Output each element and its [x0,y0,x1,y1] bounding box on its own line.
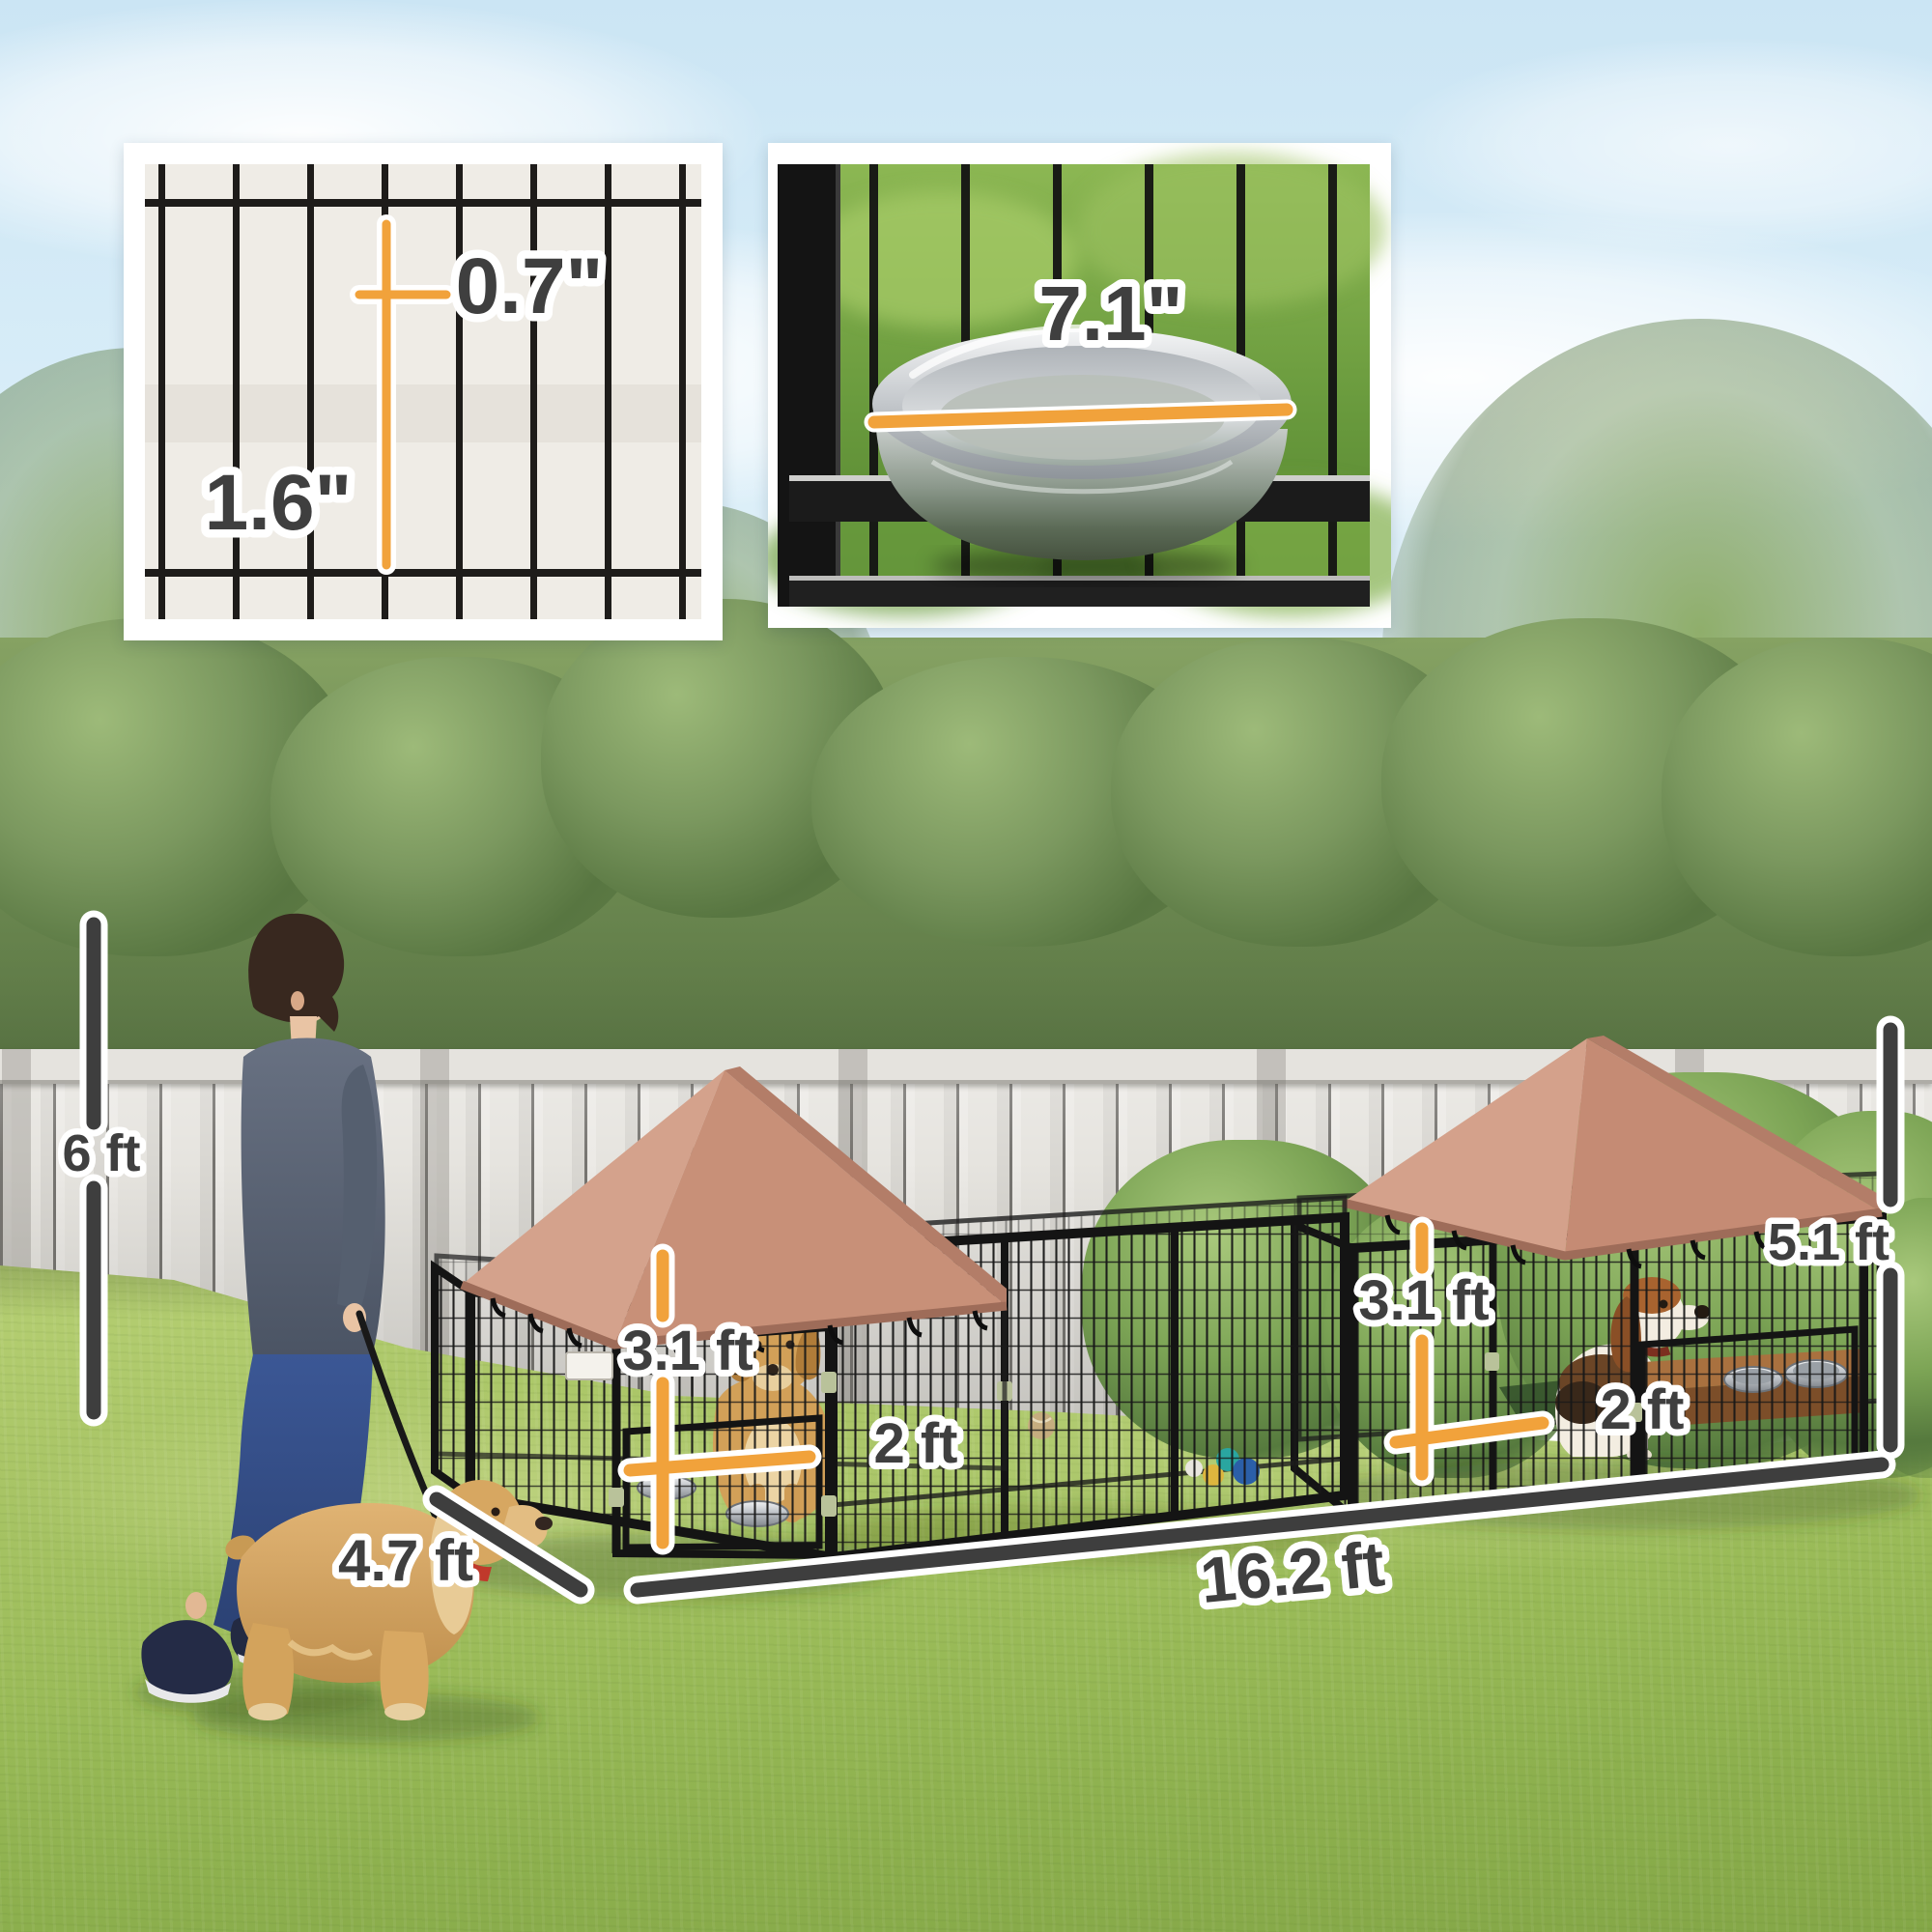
dimension-label-fence-height: 6 ft [63,1124,141,1182]
dimension-label-right-panel-height: 3.1 ft [1358,1269,1489,1332]
mesh-photo: 0.7" 1.6" [124,143,723,640]
hinge-clip [609,1488,624,1507]
product-scene: 6 ft 3.1 ft 2 ft 3.1 ft 2 ft 5.1 ft 4.7 … [0,0,1932,1932]
hinge-clip [1485,1352,1499,1371]
dimension-label-wire-horizontal-gap: 0.7" [456,242,604,330]
left-kennel-canopy [462,1066,1007,1358]
hinge-clip [821,1495,837,1517]
dimension-label-left-panel-height: 3.1 ft [622,1320,753,1382]
dimension-label-wire-vertical-gap: 1.6" [205,459,353,547]
man-hair [248,914,344,1032]
bowl-dimension-line [874,410,1287,422]
bowl-photo: 7.1" [768,143,1391,628]
brand-tag [566,1352,612,1379]
man-shoe [141,1620,233,1696]
inset-card-bowl-detail: 7.1" [768,143,1391,628]
inset-card-mesh-detail: 0.7" 1.6" [124,143,723,640]
kennel-frame-post [778,164,839,607]
dimension-label-kennel-height: 5.1 ft [1768,1213,1889,1271]
dimension-label-depth: 4.7 ft [338,1528,473,1593]
dimension-label-right-door-width: 2 ft [1601,1378,1685,1441]
left-kennel-side-panel [435,1267,470,1496]
hinge-clip [821,1372,837,1393]
dimension-label-left-door-width: 2 ft [874,1412,958,1475]
dimension-label-bowl-diameter: 7.1" [1038,270,1182,356]
